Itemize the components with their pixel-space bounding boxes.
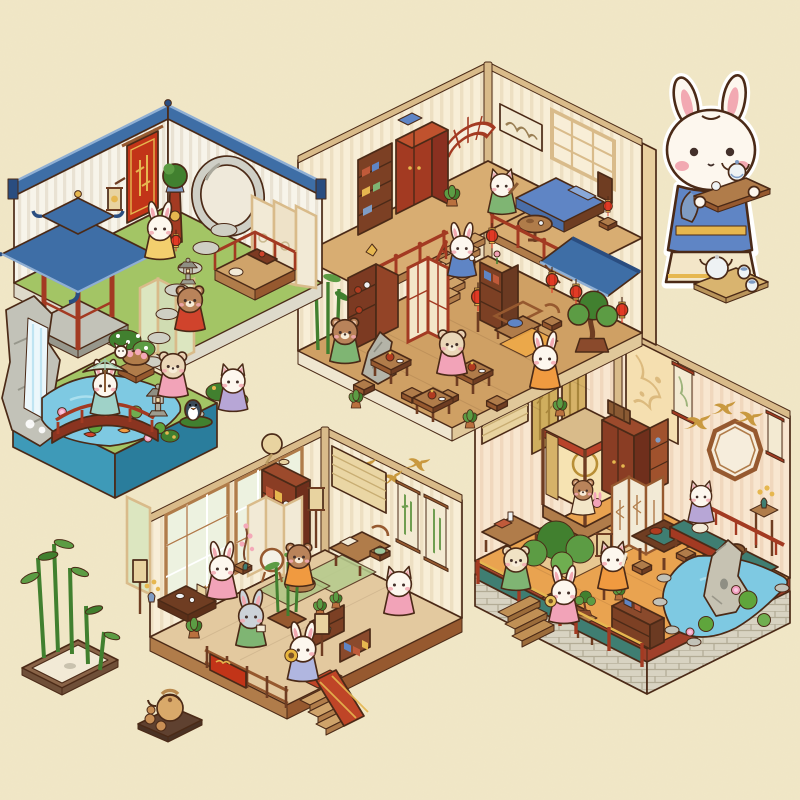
hanging-scroll: [672, 361, 694, 424]
character-bear-in-red-hanfu: [175, 286, 205, 331]
character-bear-cub-with-plush: [571, 479, 595, 515]
dollhouse-scene: [0, 0, 800, 800]
exterior-wall-edge: [642, 143, 656, 345]
character-bear-in-green-hanfu: [330, 318, 360, 363]
character-puppy-in-pink-apron: [437, 330, 467, 375]
character-bear-flower-arranger: [285, 543, 314, 586]
bamboo-scroll: [396, 480, 420, 554]
octagonal-window: [709, 421, 761, 479]
lily-pad: [699, 617, 714, 632]
bamboo-scroll: [424, 494, 448, 572]
lily-pad: [758, 614, 771, 627]
lily-pad: [739, 591, 757, 609]
character-cat-in-lavender-hanfu: [688, 481, 714, 523]
character-lamb-in-green-hanfu: [501, 546, 530, 590]
illustration-stage: Isometric cutaway dollhouse illustration…: [0, 0, 800, 800]
white-kitten: [115, 343, 128, 358]
character-puppy-in-pink-hanfu: [158, 352, 188, 397]
character-cat-in-pink-dress: [384, 567, 414, 616]
palm-leaf-fan: [262, 434, 282, 454]
hanging-scroll: [766, 410, 784, 463]
character-cat-in-purple-hanfu: [218, 364, 247, 411]
character-cat-in-orange-hanfu: [598, 542, 628, 591]
bookshelf: [358, 143, 392, 235]
